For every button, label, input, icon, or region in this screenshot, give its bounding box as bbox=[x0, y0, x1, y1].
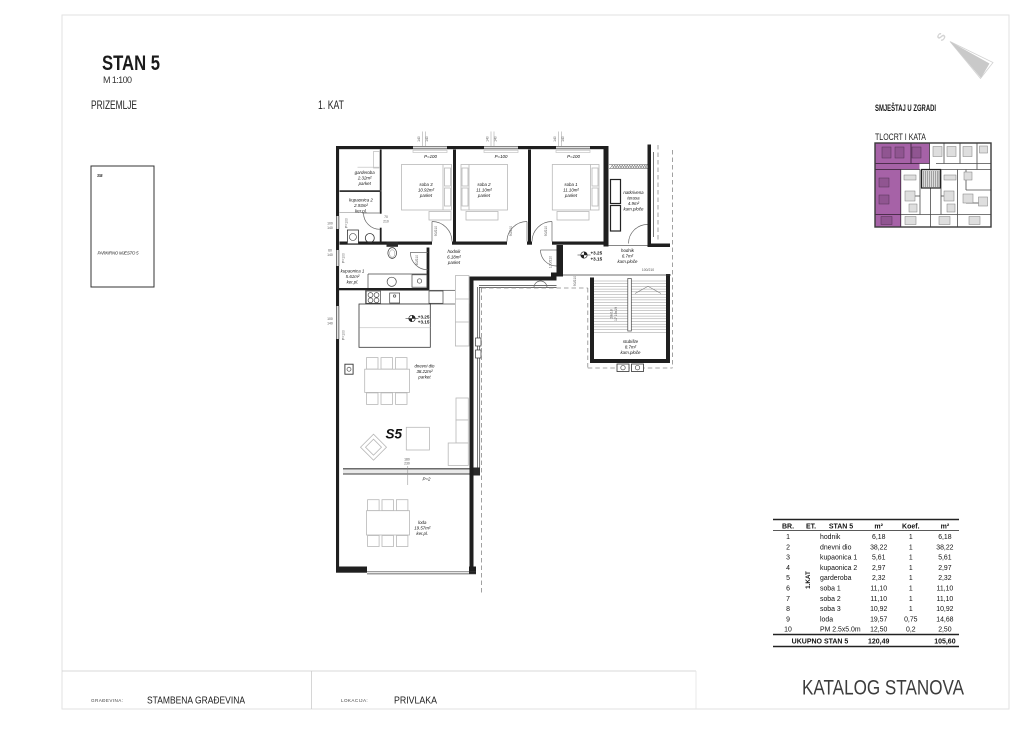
svg-text:terasa: terasa bbox=[627, 196, 640, 201]
svg-text:12,50: 12,50 bbox=[870, 627, 887, 634]
svg-text:PM 2.5x5.0m: PM 2.5x5.0m bbox=[820, 627, 861, 634]
svg-text:5: 5 bbox=[786, 575, 790, 582]
svg-text:hodnik: hodnik bbox=[448, 249, 462, 254]
svg-text:11,10: 11,10 bbox=[870, 596, 887, 603]
svg-text:90/210: 90/210 bbox=[544, 226, 548, 236]
svg-text:140: 140 bbox=[425, 136, 429, 142]
svg-text:soba 1: soba 1 bbox=[564, 182, 578, 187]
svg-text:kupaonica 2: kupaonica 2 bbox=[820, 565, 857, 572]
svg-text:10.92m²: 10.92m² bbox=[418, 188, 435, 193]
svg-text:1: 1 bbox=[909, 555, 913, 562]
svg-text:TLOCRT I KATA: TLOCRT I KATA bbox=[875, 132, 926, 142]
svg-text:6: 6 bbox=[786, 586, 790, 593]
svg-text:2.32m²: 2.32m² bbox=[357, 176, 372, 181]
svg-text:120,49: 120,49 bbox=[868, 639, 890, 646]
svg-text:STAN 5: STAN 5 bbox=[829, 524, 853, 531]
svg-text:STAN 5: STAN 5 bbox=[102, 51, 160, 75]
svg-text:Koef.: Koef. bbox=[902, 524, 920, 531]
svg-text:28x18: 28x18 bbox=[610, 309, 614, 318]
svg-text:5,61: 5,61 bbox=[872, 555, 886, 562]
svg-text:4.9m²: 4.9m² bbox=[628, 201, 640, 206]
svg-text:100: 100 bbox=[327, 317, 333, 321]
svg-text:parket: parket bbox=[477, 193, 491, 198]
svg-text:140: 140 bbox=[494, 136, 498, 142]
svg-text:14,68: 14,68 bbox=[936, 616, 953, 623]
svg-text:3: 3 bbox=[786, 555, 790, 562]
svg-text:parket: parket bbox=[419, 193, 433, 198]
svg-text:10,92: 10,92 bbox=[870, 606, 887, 613]
svg-text:9: 9 bbox=[786, 616, 790, 623]
svg-text:5,61: 5,61 bbox=[938, 555, 952, 562]
svg-text:2,97: 2,97 bbox=[938, 565, 952, 572]
svg-text:70: 70 bbox=[384, 215, 388, 219]
svg-text:m²: m² bbox=[874, 524, 883, 531]
svg-text:soba 3: soba 3 bbox=[419, 182, 433, 187]
svg-text:soba 1: soba 1 bbox=[820, 586, 841, 593]
svg-text:2,50: 2,50 bbox=[938, 627, 952, 634]
svg-text:parket: parket bbox=[564, 193, 578, 198]
svg-text:stubište: stubište bbox=[623, 339, 639, 344]
svg-text:1: 1 bbox=[909, 586, 913, 593]
svg-text:+3.15: +3.15 bbox=[418, 320, 430, 325]
svg-text:parket: parket bbox=[447, 260, 461, 265]
svg-text:38,22: 38,22 bbox=[870, 544, 887, 551]
svg-text:6,18: 6,18 bbox=[938, 534, 952, 541]
svg-text:6.18m²: 6.18m² bbox=[447, 255, 461, 260]
svg-text:loda: loda bbox=[820, 616, 833, 623]
svg-text:100/210: 100/210 bbox=[549, 256, 553, 268]
svg-text:8: 8 bbox=[786, 606, 790, 613]
svg-text:4: 4 bbox=[786, 565, 790, 572]
svg-text:90/210: 90/210 bbox=[509, 226, 513, 236]
svg-text:100/210: 100/210 bbox=[642, 268, 654, 272]
svg-text:140: 140 bbox=[553, 136, 557, 142]
svg-text:100: 100 bbox=[327, 222, 333, 226]
svg-text:140: 140 bbox=[486, 136, 490, 142]
svg-text:1: 1 bbox=[909, 534, 913, 541]
svg-text:kam.ploče: kam.ploče bbox=[620, 350, 641, 355]
svg-text:90/210: 90/210 bbox=[573, 276, 577, 286]
svg-text:P=100: P=100 bbox=[424, 154, 437, 159]
svg-text:1: 1 bbox=[909, 596, 913, 603]
svg-text:11.10m²: 11.10m² bbox=[563, 188, 579, 193]
svg-text:0,75: 0,75 bbox=[904, 616, 918, 623]
svg-text:soba 2: soba 2 bbox=[477, 182, 491, 187]
svg-text:5.61m²: 5.61m² bbox=[346, 274, 360, 279]
svg-text:17 19x19: 17 19x19 bbox=[614, 307, 618, 321]
svg-text:BR.: BR. bbox=[782, 524, 794, 531]
svg-text:KATALOG STANOVA: KATALOG STANOVA bbox=[802, 677, 964, 700]
svg-text:11,10: 11,10 bbox=[937, 586, 954, 593]
svg-text:P=100: P=100 bbox=[345, 218, 349, 228]
svg-text:2,32: 2,32 bbox=[872, 575, 886, 582]
svg-text:2,97: 2,97 bbox=[872, 565, 886, 572]
svg-text:S5: S5 bbox=[386, 427, 403, 442]
svg-text:38.22m²: 38.22m² bbox=[416, 369, 433, 374]
svg-text:19.57m²: 19.57m² bbox=[414, 526, 431, 531]
svg-text:1. KAT: 1. KAT bbox=[318, 100, 344, 112]
svg-text:1: 1 bbox=[786, 534, 790, 541]
svg-text:1: 1 bbox=[909, 544, 913, 551]
svg-text:6.7m²: 6.7m² bbox=[622, 254, 634, 259]
svg-text:garderoba: garderoba bbox=[820, 575, 852, 582]
svg-text:M 1:100: M 1:100 bbox=[103, 75, 132, 85]
svg-text:S5: S5 bbox=[97, 173, 103, 178]
svg-text:soba 3: soba 3 bbox=[820, 606, 841, 613]
svg-text:PRIZEMLJE: PRIZEMLJE bbox=[91, 100, 137, 112]
svg-text:7: 7 bbox=[786, 596, 790, 603]
svg-text:soba 2: soba 2 bbox=[820, 596, 841, 603]
svg-text:140: 140 bbox=[327, 253, 333, 257]
svg-text:dnevni dio: dnevni dio bbox=[820, 544, 852, 551]
svg-text:1: 1 bbox=[909, 575, 913, 582]
svg-text:10,92: 10,92 bbox=[936, 606, 953, 613]
svg-text:38,22: 38,22 bbox=[936, 544, 953, 551]
svg-text:2: 2 bbox=[786, 544, 790, 551]
svg-text:+3.25: +3.25 bbox=[591, 250, 603, 255]
svg-text:kam.ploče: kam.ploče bbox=[617, 259, 638, 264]
svg-text:UKUPNO STAN 5: UKUPNO STAN 5 bbox=[792, 639, 849, 646]
svg-text:1: 1 bbox=[909, 565, 913, 572]
svg-text:105,60: 105,60 bbox=[934, 639, 956, 646]
svg-text:P=2: P=2 bbox=[423, 477, 431, 482]
svg-text:+3.15: +3.15 bbox=[591, 257, 603, 262]
svg-text:11.10m²: 11.10m² bbox=[476, 188, 492, 193]
svg-text:P=100: P=100 bbox=[567, 154, 580, 159]
svg-text:LOKACIJA:: LOKACIJA: bbox=[341, 698, 368, 703]
svg-text:80/210: 80/210 bbox=[415, 255, 419, 265]
svg-text:kupaonica 1: kupaonica 1 bbox=[820, 555, 857, 562]
svg-text:11,10: 11,10 bbox=[870, 586, 887, 593]
svg-text:1: 1 bbox=[909, 606, 913, 613]
svg-text:ker.pl.: ker.pl. bbox=[355, 209, 367, 214]
svg-text:m²: m² bbox=[941, 524, 950, 531]
svg-text:dnevni dio: dnevni dio bbox=[414, 364, 435, 369]
svg-text:2,32: 2,32 bbox=[938, 575, 952, 582]
svg-text:garderoba: garderoba bbox=[355, 170, 376, 175]
svg-text:+3.25: +3.25 bbox=[418, 314, 430, 319]
svg-text:1.KAT: 1.KAT bbox=[805, 571, 812, 589]
svg-text:parket: parket bbox=[358, 181, 372, 186]
svg-text:hodnik: hodnik bbox=[820, 534, 841, 541]
svg-text:P=100: P=100 bbox=[495, 154, 508, 159]
svg-text:10: 10 bbox=[784, 627, 792, 634]
svg-text:8.7m²: 8.7m² bbox=[625, 345, 637, 350]
svg-text:GRAĐEVINA:: GRAĐEVINA: bbox=[91, 698, 123, 703]
svg-text:6,18: 6,18 bbox=[872, 534, 886, 541]
svg-text:230: 230 bbox=[404, 462, 410, 466]
svg-text:SMJEŠTAJ U ZGRADI: SMJEŠTAJ U ZGRADI bbox=[875, 102, 936, 113]
svg-text:140: 140 bbox=[561, 136, 565, 142]
svg-text:19,57: 19,57 bbox=[870, 616, 887, 623]
svg-text:kupaonica 2: kupaonica 2 bbox=[349, 198, 373, 203]
svg-text:2.93m²: 2.93m² bbox=[353, 203, 368, 208]
svg-text:60: 60 bbox=[328, 249, 332, 253]
svg-text:kam.ploče: kam.ploče bbox=[623, 207, 644, 212]
svg-text:140: 140 bbox=[327, 322, 333, 326]
svg-text:ker.pl.: ker.pl. bbox=[347, 280, 359, 285]
svg-text:P=100: P=100 bbox=[342, 330, 346, 340]
svg-text:kupaonica 1: kupaonica 1 bbox=[341, 269, 365, 274]
svg-text:P=100: P=100 bbox=[342, 253, 346, 263]
svg-text:natkrivena: natkrivena bbox=[623, 190, 644, 195]
svg-text:hodnik: hodnik bbox=[621, 248, 635, 253]
svg-text:90/210: 90/210 bbox=[434, 226, 438, 236]
svg-text:PRIVLAKA: PRIVLAKA bbox=[394, 696, 437, 707]
svg-text:210: 210 bbox=[383, 220, 389, 224]
svg-text:PARKIRNO MJESTO 5: PARKIRNO MJESTO 5 bbox=[98, 251, 140, 256]
svg-text:0,2: 0,2 bbox=[906, 627, 916, 634]
svg-text:STAMBENA GRAĐEVINA: STAMBENA GRAĐEVINA bbox=[147, 696, 245, 707]
svg-text:140: 140 bbox=[417, 136, 421, 142]
svg-text:140: 140 bbox=[327, 226, 333, 230]
svg-text:ET.: ET. bbox=[806, 524, 816, 531]
svg-text:ker.pl.: ker.pl. bbox=[416, 531, 428, 536]
svg-text:parket: parket bbox=[417, 375, 431, 380]
svg-text:loda: loda bbox=[418, 520, 427, 525]
svg-text:11,10: 11,10 bbox=[937, 596, 954, 603]
